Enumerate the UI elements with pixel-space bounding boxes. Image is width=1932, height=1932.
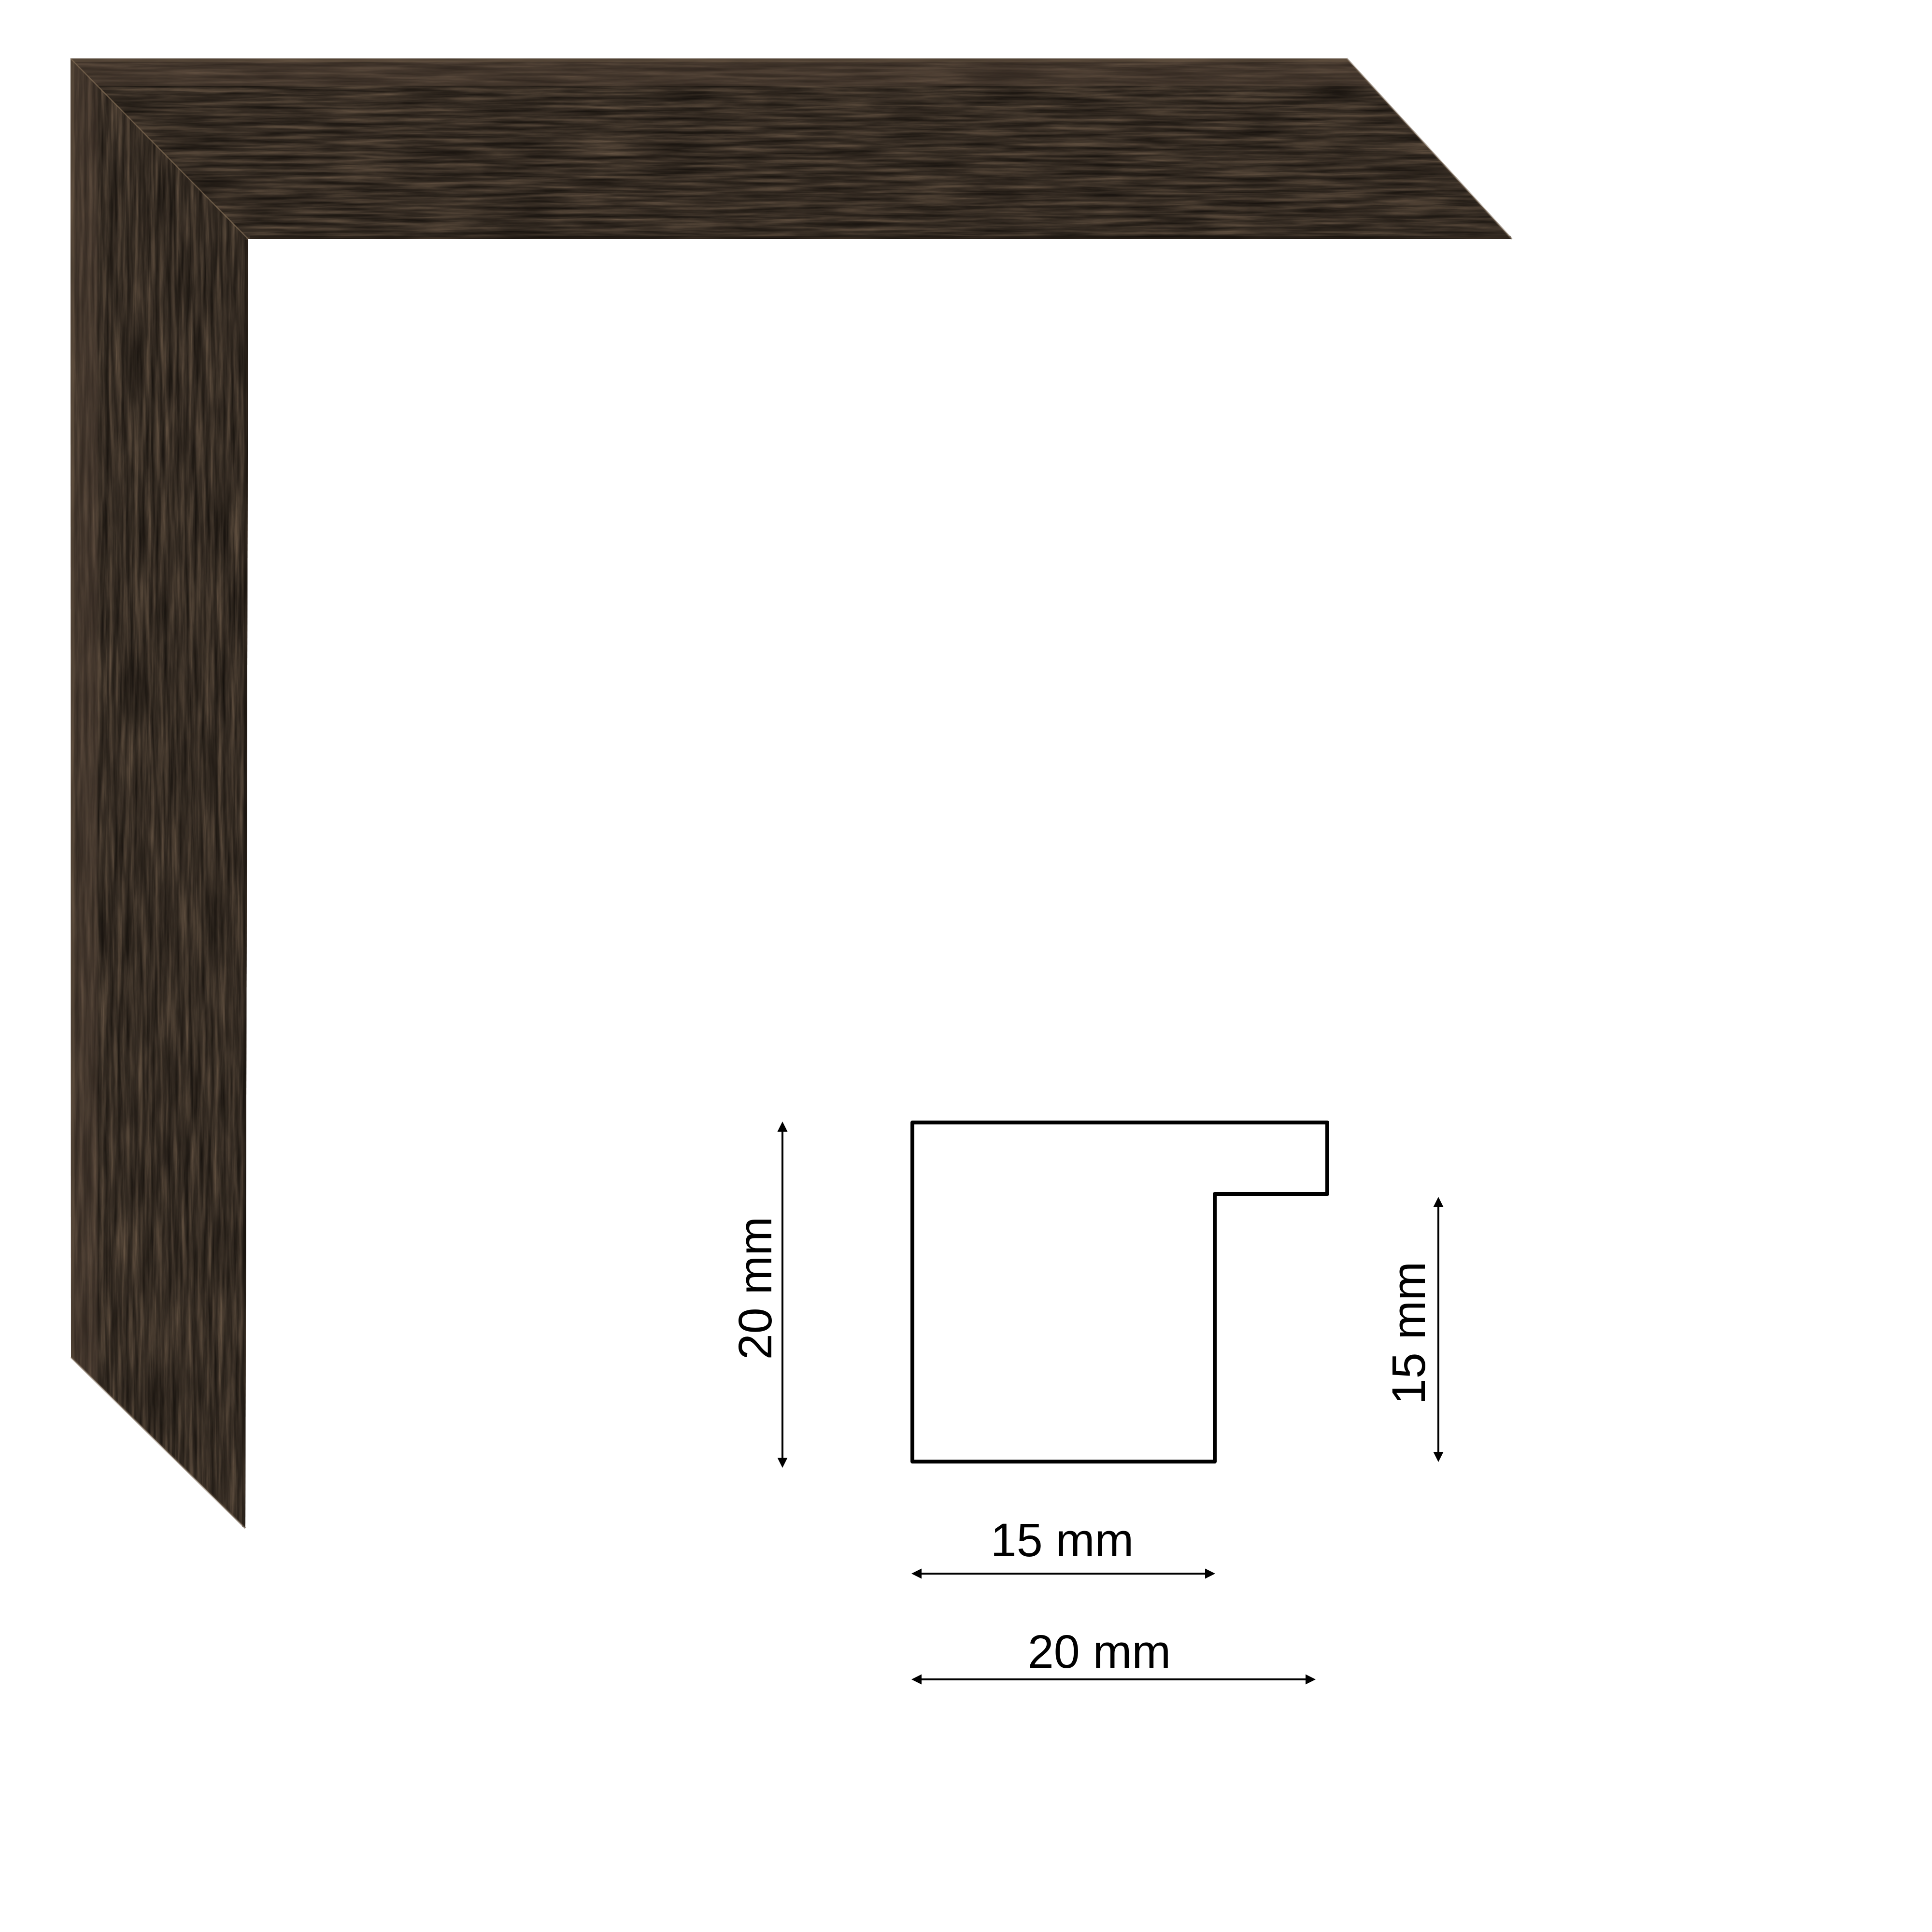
- svg-text:15 mm: 15 mm: [991, 1514, 1134, 1566]
- svg-text:20 mm: 20 mm: [1028, 1625, 1171, 1678]
- svg-text:20 mm: 20 mm: [729, 1217, 781, 1360]
- svg-text:15 mm: 15 mm: [1382, 1262, 1435, 1405]
